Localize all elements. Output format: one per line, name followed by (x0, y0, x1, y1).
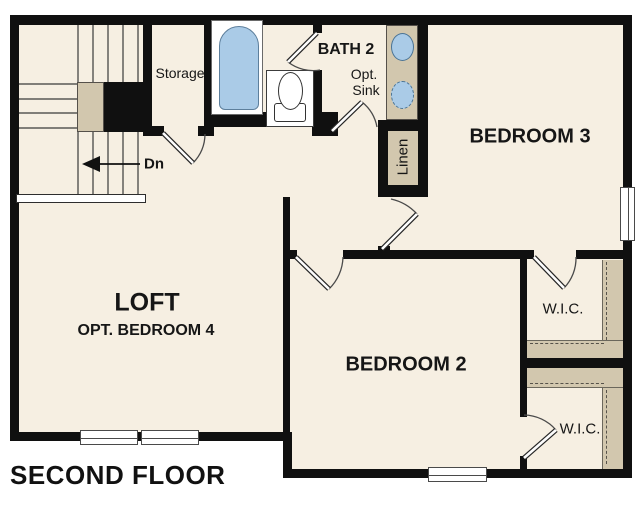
door-bedroom2 (296, 257, 343, 289)
label-wic-top: W.I.C. (543, 301, 584, 318)
label-linen: Linen (395, 139, 412, 176)
label-loft-option: OPT. BEDROOM 4 (78, 322, 215, 340)
stair-treads (19, 25, 138, 194)
door-bedroom3 (382, 199, 417, 249)
page-title: SECOND FLOOR (10, 460, 225, 491)
stairs-down-arrow (82, 156, 140, 172)
door-wic-bottom (524, 415, 556, 458)
door-wic-top (534, 257, 576, 288)
label-loft: LOFT (114, 289, 179, 318)
label-bedroom3: BEDROOM 3 (469, 126, 590, 149)
floor-plan: LOFT OPT. BEDROOM 4 BEDROOM 2 BEDROOM 3 … (0, 0, 640, 512)
label-bath2: BATH 2 (318, 41, 375, 59)
label-opt-sink-2: Sink (352, 82, 379, 98)
door-hall (332, 102, 377, 131)
label-bedroom2: BEDROOM 2 (345, 354, 466, 377)
label-storage: Storage (155, 65, 204, 81)
label-wic-bottom: W.I.C. (560, 421, 601, 438)
label-stairs-down: Dn (144, 156, 164, 173)
door-storage (163, 133, 205, 163)
door-bath2 (288, 33, 320, 71)
plan-linework (0, 0, 640, 512)
label-opt-sink-1: Opt. (351, 66, 377, 82)
